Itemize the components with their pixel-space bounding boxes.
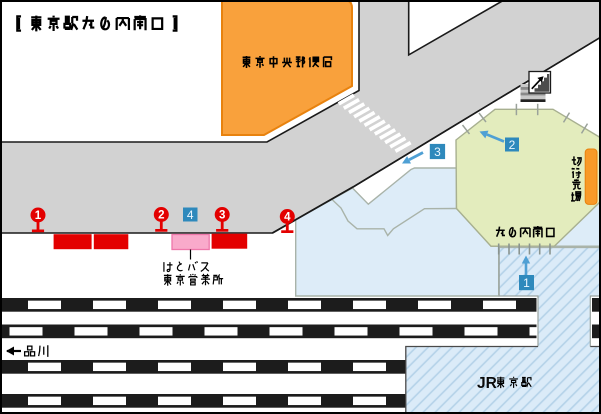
svg-text:4: 4	[284, 212, 291, 224]
svg-text:1: 1	[523, 276, 530, 290]
svg-text:3: 3	[219, 210, 225, 222]
svg-text:1: 1	[35, 210, 42, 222]
svg-text:3: 3	[434, 145, 441, 159]
svg-text:JR: JR	[477, 375, 497, 392]
svg-text:4: 4	[187, 208, 194, 222]
svg-text:2: 2	[509, 138, 516, 152]
svg-text:2: 2	[158, 210, 164, 222]
